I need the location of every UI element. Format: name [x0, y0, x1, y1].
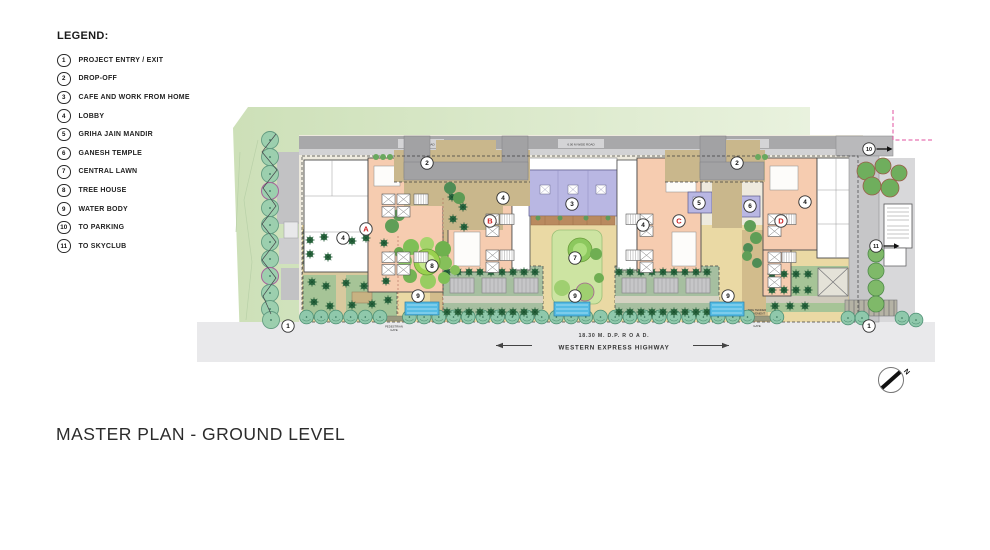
plan-marker-1: 1	[282, 320, 294, 332]
svg-text:4: 4	[803, 199, 807, 206]
building-marker-c: C	[673, 215, 685, 227]
gate-label: GATE	[390, 328, 398, 332]
svg-text:9: 9	[573, 293, 577, 300]
master-plan-drawing: 6.00 M WIDE ROAD 6.00 M WIDE ROAD 6.00 M…	[0, 0, 990, 550]
svg-text:1: 1	[867, 323, 871, 330]
plan-marker-4: 4	[497, 192, 509, 204]
building-marker-a: A	[360, 223, 372, 235]
highway-label: WESTERN EXPRESS HIGHWAY	[559, 345, 670, 352]
svg-text:3: 3	[570, 201, 574, 208]
top-internal-road: 6.00 M WIDE ROAD 6.00 M WIDE ROAD 6.00 M…	[299, 136, 863, 155]
building-marker-b: B	[484, 215, 496, 227]
building-marker-d: D	[775, 215, 787, 227]
north-arrow: N	[879, 368, 911, 393]
svg-text:10: 10	[866, 147, 872, 153]
svg-text:C: C	[676, 217, 682, 226]
master-plan-page: { "legend": { "title": "LEGEND:", "items…	[0, 0, 990, 550]
svg-text:A: A	[363, 225, 369, 234]
svg-text:D: D	[778, 217, 784, 226]
svg-text:2: 2	[425, 160, 429, 167]
svg-text:8: 8	[430, 263, 434, 270]
side-road-label: 6.00 M WIDE ROAD	[567, 143, 595, 147]
development-boundary-pink	[893, 110, 932, 140]
svg-text:5: 5	[697, 200, 701, 207]
svg-text:4: 4	[501, 195, 505, 202]
plan-marker-8: 8	[426, 260, 438, 272]
plan-marker-4: 4	[637, 219, 649, 231]
svg-text:B: B	[487, 217, 493, 226]
svg-text:6: 6	[748, 203, 752, 210]
plan-marker-3: 3	[566, 198, 578, 210]
plan-marker-1: 1	[863, 320, 875, 332]
svg-text:7: 7	[573, 255, 577, 262]
svg-text:2: 2	[735, 160, 739, 167]
plan-marker-6: 6	[744, 200, 756, 212]
dp-road-label: 18.30 M. D.P. R O A D.	[579, 333, 650, 339]
plan-marker-9: 9	[569, 290, 581, 302]
north-label: N	[902, 368, 911, 376]
plan-marker-5: 5	[693, 197, 705, 209]
gate-label: GATE	[753, 324, 761, 328]
svg-text:9: 9	[416, 293, 420, 300]
plan-marker-2: 2	[731, 157, 743, 169]
svg-text:4: 4	[341, 235, 345, 242]
svg-text:11: 11	[873, 244, 879, 250]
plan-marker-4: 4	[799, 196, 811, 208]
plan-marker-9: 9	[722, 290, 734, 302]
svg-text:1: 1	[286, 323, 290, 330]
dp-road-highway: 18.30 M. D.P. R O A D. WESTERN EXPRESS H…	[197, 322, 935, 362]
svg-text:4: 4	[641, 222, 645, 229]
plan-marker-7: 7	[569, 252, 581, 264]
svg-text:9: 9	[726, 293, 730, 300]
plan-marker-4: 4	[337, 232, 349, 244]
plan-marker-9: 9	[412, 290, 424, 302]
plan-marker-2: 2	[421, 157, 433, 169]
